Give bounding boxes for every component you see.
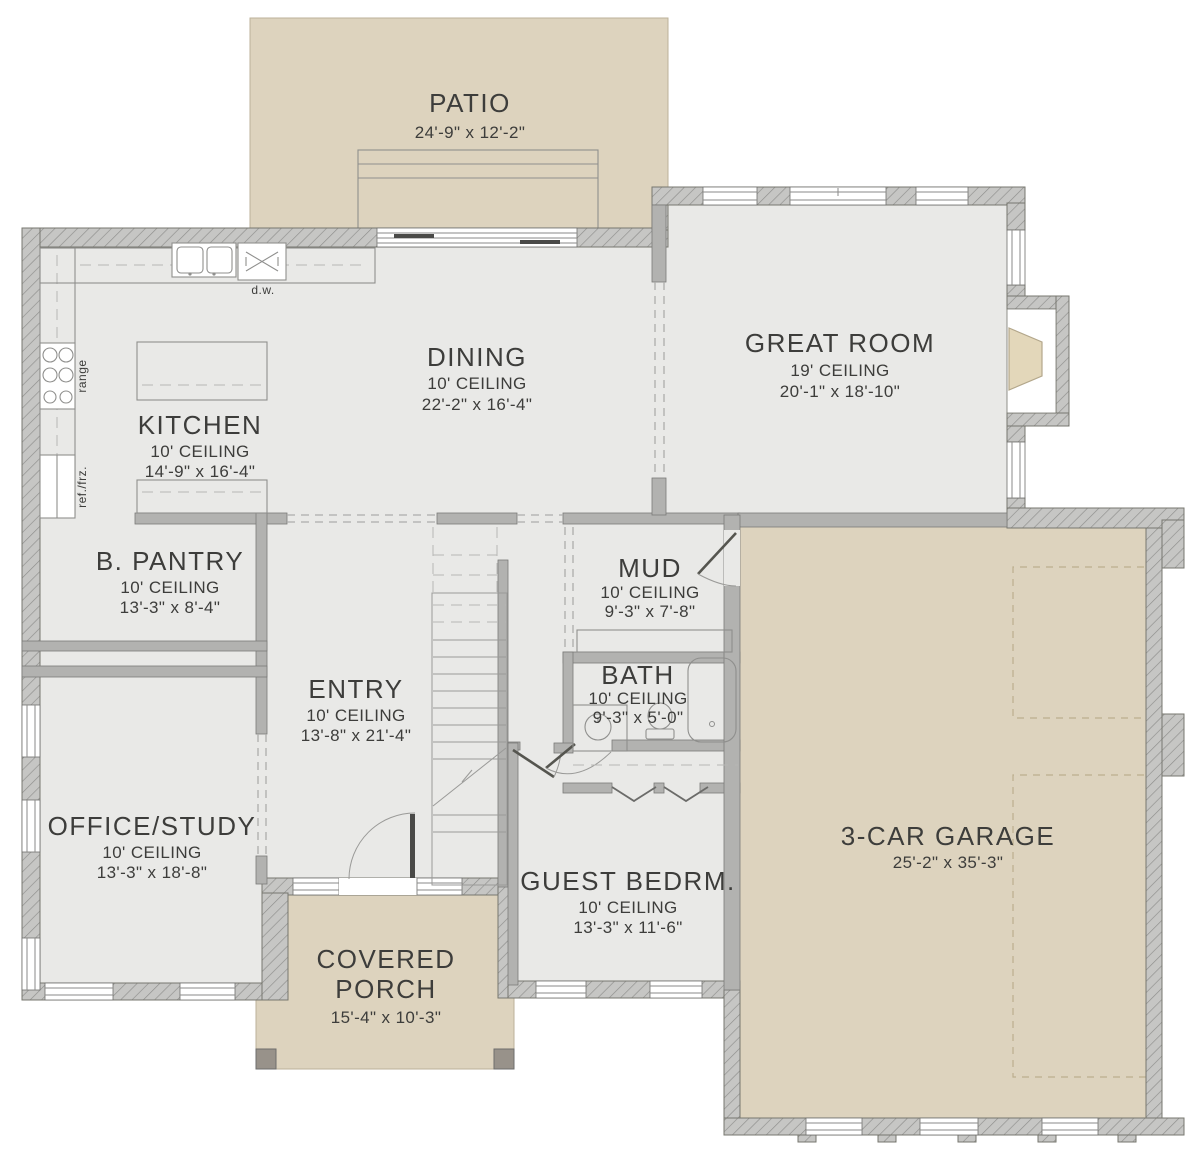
svg-text:PATIO: PATIO bbox=[429, 88, 511, 118]
svg-text:B. PANTRY: B. PANTRY bbox=[96, 546, 244, 576]
floor-plan-drawing: d.w. range ref./frz. bbox=[0, 0, 1200, 1160]
fireplace bbox=[1007, 309, 1056, 413]
svg-text:20'-1" x 18'-10": 20'-1" x 18'-10" bbox=[780, 382, 900, 401]
svg-text:22'-2" x 16'-4": 22'-2" x 16'-4" bbox=[422, 395, 533, 414]
label-porch: COVERED PORCH 15'-4" x 10'-3" bbox=[316, 944, 455, 1027]
svg-text:10' CEILING: 10' CEILING bbox=[600, 583, 699, 602]
svg-text:9'-3" x 5'-0": 9'-3" x 5'-0" bbox=[593, 708, 684, 727]
svg-text:ENTRY: ENTRY bbox=[308, 674, 403, 704]
svg-text:10' CEILING: 10' CEILING bbox=[150, 442, 249, 461]
svg-text:13'-3" x 8'-4": 13'-3" x 8'-4" bbox=[120, 598, 221, 617]
svg-text:KITCHEN: KITCHEN bbox=[138, 410, 263, 440]
label-bath: BATH 10' CEILING 9'-3" x 5'-0" bbox=[588, 660, 687, 727]
svg-text:GUEST BEDRM.: GUEST BEDRM. bbox=[520, 866, 735, 896]
dishwasher-label: d.w. bbox=[251, 283, 274, 297]
svg-text:10' CEILING: 10' CEILING bbox=[427, 374, 526, 393]
svg-text:3-CAR GARAGE: 3-CAR GARAGE bbox=[841, 821, 1056, 851]
svg-text:24'-9" x 12'-2": 24'-9" x 12'-2" bbox=[415, 123, 526, 142]
svg-text:10' CEILING: 10' CEILING bbox=[306, 706, 405, 725]
label-dining: DINING 10' CEILING 22'-2" x 16'-4" bbox=[422, 342, 533, 414]
range-label: range bbox=[75, 359, 89, 392]
svg-text:PORCH: PORCH bbox=[335, 974, 436, 1004]
svg-text:9'-3" x 7'-8": 9'-3" x 7'-8" bbox=[605, 602, 696, 621]
label-entry: ENTRY 10' CEILING 13'-8" x 21'-4" bbox=[301, 674, 412, 745]
svg-text:OFFICE/STUDY: OFFICE/STUDY bbox=[48, 811, 257, 841]
svg-text:14'-9" x 16'-4": 14'-9" x 16'-4" bbox=[145, 462, 256, 481]
floor-plan-page: d.w. range ref./frz. bbox=[0, 0, 1200, 1160]
entry-front-openings bbox=[293, 878, 462, 895]
svg-text:COVERED: COVERED bbox=[316, 944, 455, 974]
patio-sliding-door bbox=[377, 228, 577, 247]
svg-text:GREAT ROOM: GREAT ROOM bbox=[745, 328, 935, 358]
label-kitchen: KITCHEN 10' CEILING 14'-9" x 16'-4" bbox=[138, 410, 263, 481]
svg-text:13'-3" x 18'-8": 13'-3" x 18'-8" bbox=[97, 863, 208, 882]
great-room-windows bbox=[703, 187, 968, 205]
garage-door-openings bbox=[806, 1118, 1098, 1135]
svg-text:10' CEILING: 10' CEILING bbox=[120, 578, 219, 597]
svg-text:10' CEILING: 10' CEILING bbox=[588, 689, 687, 708]
svg-text:15'-4" x 10'-3": 15'-4" x 10'-3" bbox=[331, 1008, 442, 1027]
svg-text:MUD: MUD bbox=[618, 553, 682, 583]
kitchen-sink bbox=[172, 243, 236, 277]
svg-text:25'-2" x 35'-3": 25'-2" x 35'-3" bbox=[893, 853, 1004, 872]
svg-text:13'-8" x 21'-4": 13'-8" x 21'-4" bbox=[301, 726, 412, 745]
svg-text:BATH: BATH bbox=[601, 660, 674, 690]
svg-text:10' CEILING: 10' CEILING bbox=[578, 898, 677, 917]
refrigerator-label: ref./frz. bbox=[75, 466, 89, 508]
svg-text:19' CEILING: 19' CEILING bbox=[790, 361, 889, 380]
svg-text:13'-3" x 11'-6": 13'-3" x 11'-6" bbox=[573, 918, 682, 937]
office-side-windows bbox=[22, 705, 40, 990]
svg-text:10' CEILING: 10' CEILING bbox=[102, 843, 201, 862]
label-patio: PATIO 24'-9" x 12'-2" bbox=[415, 88, 526, 142]
svg-text:DINING: DINING bbox=[427, 342, 527, 372]
